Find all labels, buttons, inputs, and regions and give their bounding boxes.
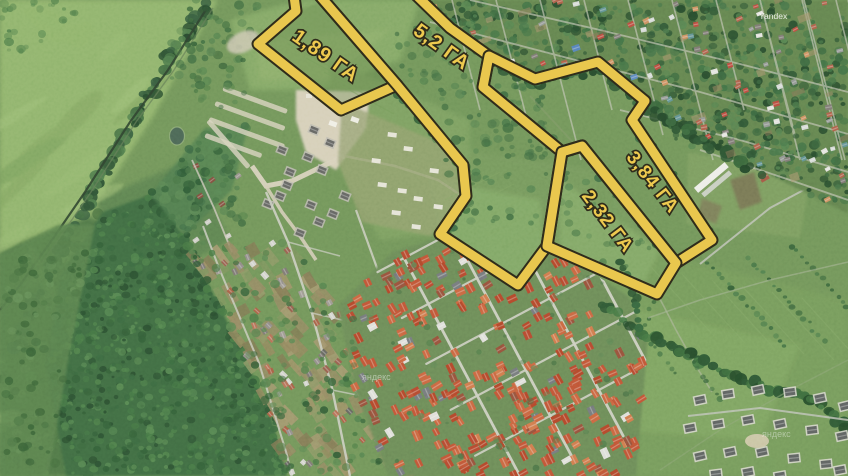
svg-text:яндекс: яндекс xyxy=(762,429,791,439)
svg-text:яндекс: яндекс xyxy=(362,372,391,382)
svg-text:Yandex: Yandex xyxy=(759,11,788,21)
